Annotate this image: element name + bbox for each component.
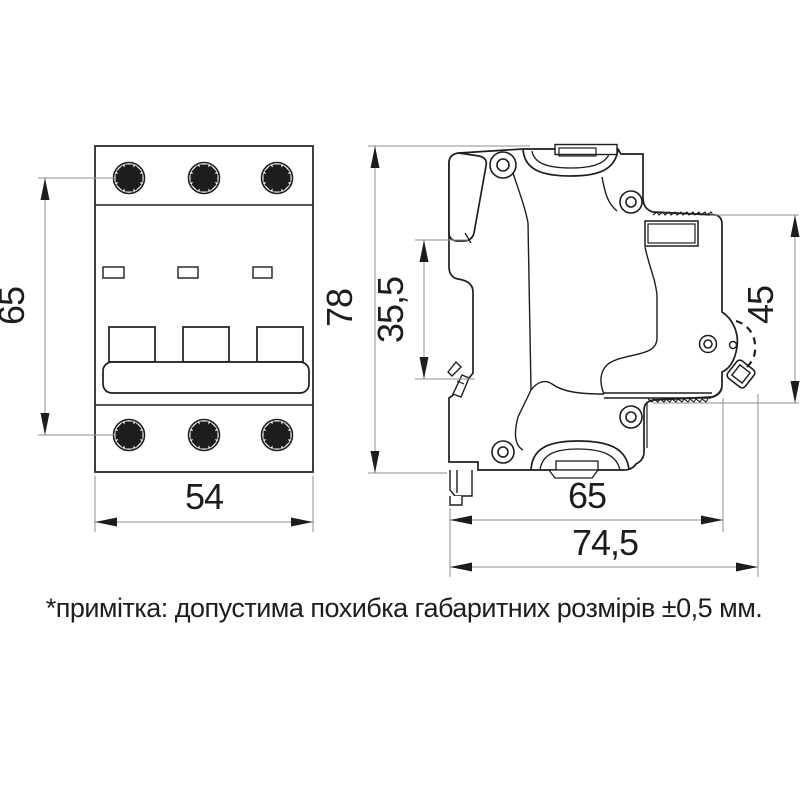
side-view xyxy=(448,145,756,506)
front-toggle-handles xyxy=(103,327,309,393)
pozidriv-screw-icon xyxy=(262,420,293,451)
arrowhead-icon xyxy=(371,146,380,168)
dim-label-front-height: 65 xyxy=(0,287,32,325)
dim-label-upper-depth: 45 xyxy=(740,286,781,324)
dim-label-din-slot: 35,5 xyxy=(370,277,411,343)
din-clip-hook xyxy=(450,496,462,505)
technical-drawing-page: 65 54 78 35,5 45 xyxy=(0,0,800,800)
dim-label-front-width: 54 xyxy=(185,476,223,517)
arrowhead-icon xyxy=(41,413,50,435)
arrowhead-icon xyxy=(791,381,800,403)
arrowhead-icon xyxy=(420,240,429,262)
arrowhead-icon xyxy=(95,518,117,527)
arrowhead-icon xyxy=(450,516,472,525)
din-latch-tip xyxy=(448,362,461,376)
arrowhead-icon xyxy=(371,451,380,473)
front-bottom-terminal-screws xyxy=(114,420,293,451)
tolerance-note: *примітка: допустима похибка габаритних … xyxy=(46,593,763,623)
arrowhead-icon xyxy=(736,563,758,572)
arrowhead-icon xyxy=(450,563,472,572)
arrowhead-icon xyxy=(701,516,723,525)
pozidriv-screw-icon xyxy=(262,163,293,194)
top-terminal-box xyxy=(645,221,698,246)
top-tab xyxy=(555,145,617,155)
pozidriv-screw-icon xyxy=(189,420,220,451)
toggle-handle xyxy=(257,327,303,362)
arrowhead-icon xyxy=(420,357,429,379)
rivet-icon xyxy=(620,406,642,428)
front-top-terminal-screws xyxy=(114,163,293,194)
dim-label-body-depth: 65 xyxy=(568,475,606,516)
arrowhead-icon xyxy=(41,178,50,200)
bottom-tab xyxy=(556,461,598,470)
arrowhead-icon xyxy=(791,215,800,237)
pivot-screw-icon xyxy=(700,336,717,353)
pozidriv-screw-icon xyxy=(189,163,220,194)
rivet-icon xyxy=(492,441,514,463)
arrowhead-icon xyxy=(291,518,313,527)
rivet-icon xyxy=(620,191,642,213)
front-view xyxy=(95,146,313,472)
pozidriv-screw-icon xyxy=(114,420,145,451)
drawing-canvas: 65 54 78 35,5 45 xyxy=(0,0,800,800)
handle-tie-bar xyxy=(103,362,309,393)
dimension-front-width: 54 xyxy=(95,476,313,532)
dim-label-total-depth: 74,5 xyxy=(572,522,638,563)
rivet-icon xyxy=(490,152,516,178)
toggle-handle xyxy=(183,327,229,362)
pozidriv-screw-icon xyxy=(114,163,145,194)
toggle-handle xyxy=(109,327,155,362)
dim-label-side-height: 78 xyxy=(319,289,360,327)
side-body-outline xyxy=(449,149,737,470)
din-clip-foot xyxy=(450,470,472,496)
